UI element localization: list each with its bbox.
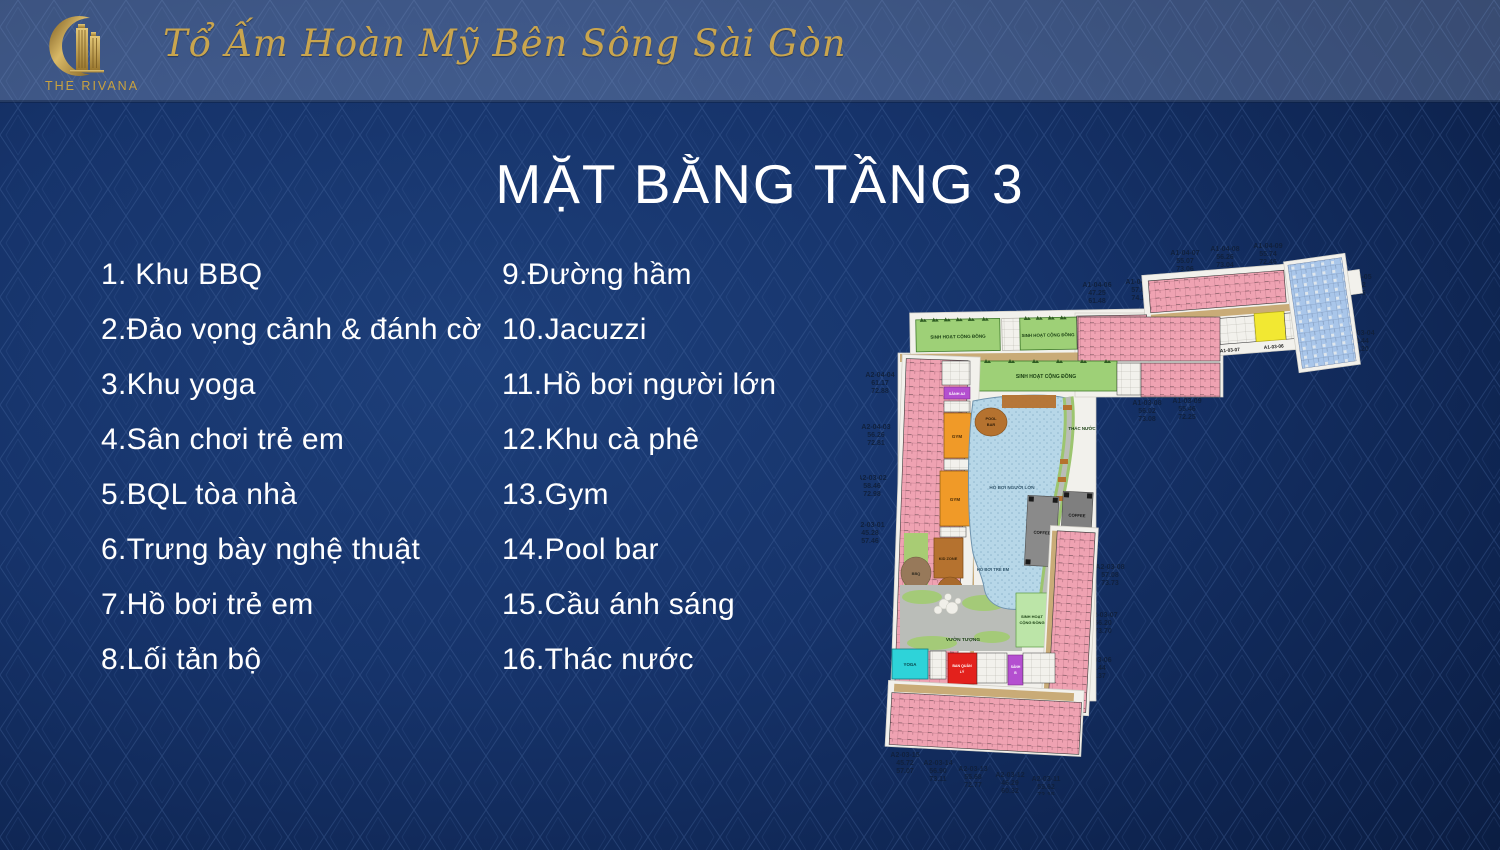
- unit-label-stack: A1-04-0755.0773.06: [1170, 250, 1199, 273]
- community-area-4: SINH HOẠT CỘNG ĐỒNG: [1016, 593, 1048, 647]
- unit-yellow: [1254, 311, 1286, 341]
- legend-item: 6.Trưng bày nghệ thuật: [101, 533, 482, 567]
- community-4-label-2: CỘNG ĐỒNG: [1019, 620, 1044, 625]
- legend-column-right: 9.Đường hầm 10.Jacuzzi 11.Hồ bơi người l…: [502, 258, 776, 698]
- legend-item: 1. Khu BBQ: [101, 258, 482, 292]
- coffee-1-label: COFFEE: [1033, 530, 1050, 536]
- pool-deck: [1002, 395, 1056, 408]
- unit-label-stack: A1-03-0955.4672.25: [1172, 398, 1201, 421]
- kid-zone-label: KID ZONE: [939, 556, 958, 561]
- community-label-2: SINH HOẠT CỘNG ĐỒNG: [1022, 332, 1076, 338]
- adult-pool-label: HỒ BƠI NGƯỜI LỚN: [989, 483, 1035, 490]
- legend-item: 12.Khu cà phê: [502, 423, 776, 457]
- unit-label-stack: A2-03-1355.6872.77: [958, 766, 987, 789]
- unit-label-stack: A1-04-0647.2561.48: [1082, 282, 1111, 305]
- legend-item: 13.Gym: [502, 478, 776, 512]
- lobby-b: [1008, 655, 1023, 685]
- legend-item: 7.Hồ bơi trẻ em: [101, 588, 482, 622]
- management-office: [948, 653, 977, 684]
- kids-pool-label: HỒ BƠI TRẺ EM: [977, 567, 1010, 572]
- legend-item: 3.Khu yoga: [101, 368, 482, 402]
- tagline: Tổ Ấm Hoàn Mỹ Bên Sông Sài Gòn: [163, 22, 847, 65]
- legend-item: 2.Đảo vọng cảnh & đánh cờ: [101, 313, 482, 347]
- wing-bottom: [885, 680, 1084, 756]
- unit-label-stack: A2-04-0461.1772.88: [865, 372, 894, 395]
- lobby-a2-label: SẢNH A2: [949, 391, 966, 396]
- management-label-1: BAN QUẢN: [952, 663, 972, 668]
- community-label-3: SINH HOẠT CỘNG ĐỒNG: [1016, 372, 1076, 380]
- tower-blue: [1284, 252, 1373, 373]
- waterfall-label: THÁC NƯỚC: [1068, 426, 1096, 431]
- legend-item: 9.Đường hầm: [502, 258, 776, 292]
- legend-item: 14.Pool bar: [502, 533, 776, 567]
- pool-bar-label-1: POOL: [985, 416, 997, 421]
- legend-item: 8.Lối tản bộ: [101, 643, 482, 677]
- legend-item: 5.BQL tòa nhà: [101, 478, 482, 512]
- unit-label-stack: A2-03-0857.0873.73: [1095, 564, 1124, 587]
- community-4-label-1: SINH HOẠT: [1021, 614, 1044, 619]
- unit-label-stack: A1-04-0856.2673.04: [1210, 246, 1239, 269]
- legend-item: 4.Sân chơi trẻ em: [101, 423, 482, 457]
- gym-1-label: GYM: [952, 434, 963, 439]
- page-title: MẶT BẰNG TẦNG 3: [0, 152, 1500, 216]
- unit-label-stack: A2-03-1456.9073.11: [923, 760, 952, 783]
- unit-label-stack: A2-03-1246.2960.32: [995, 772, 1024, 795]
- slide-root: { "header": { "brand": "THE RIVANA", "ta…: [0, 0, 1500, 850]
- wing-right: [1041, 525, 1099, 715]
- unit-label-stack: A2-03-0258.4672.98: [860, 475, 887, 498]
- unit-label-stack: A2-03-1155.6272.15: [1032, 776, 1061, 795]
- gym-2-label: GYM: [950, 497, 961, 502]
- legend-item: 11.Hồ bơi người lớn: [502, 368, 776, 402]
- pool-bar-label-2: BAR: [987, 422, 996, 427]
- lobby-b-label-1: SẢNH: [1011, 664, 1021, 669]
- building-icon: [70, 24, 104, 73]
- unit-label-stack: A1-03-0856.0273.08: [1132, 400, 1161, 423]
- yoga-label: YOGA: [904, 662, 918, 667]
- unit-label-stack: A2-04-0356.2672.81: [861, 424, 890, 447]
- brand-name: THE RIVANA: [45, 79, 139, 93]
- management-label-2: LÝ: [960, 669, 965, 674]
- unit-label-stack: A2-03-0145.2857.46: [860, 522, 885, 545]
- legend-column-left: 1. Khu BBQ 2.Đảo vọng cảnh & đánh cờ 3.K…: [101, 258, 482, 698]
- coffee-2-label: COFFEE: [1068, 512, 1085, 518]
- brand-logo: THE RIVANA: [26, 4, 156, 100]
- legend-item: 10.Jacuzzi: [502, 313, 776, 347]
- bbq-label: BBQ: [912, 571, 921, 576]
- floor-plan: A1-04-0755.0773.06 A1-04-0856.2673.04 A1…: [860, 235, 1500, 795]
- unit-label-stack: A1-04-0955.7472.46: [1253, 243, 1282, 266]
- unit-label-stack: A2-03-1545.7257.07: [890, 752, 919, 775]
- legend-item: 16.Thác nước: [502, 643, 776, 677]
- legend-item: 15.Cầu ánh sáng: [502, 588, 776, 622]
